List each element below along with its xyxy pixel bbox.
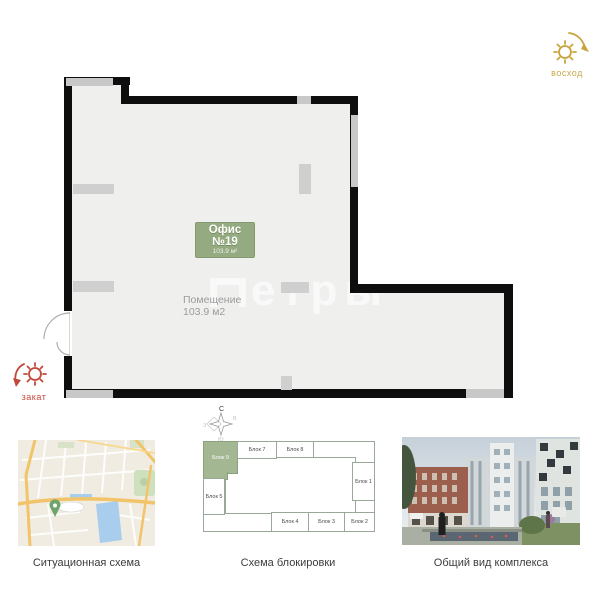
wall <box>350 284 513 293</box>
complex-view-thumbnail[interactable] <box>402 437 580 545</box>
floor-plan-page: етры Офис №19 103.9 м² <box>0 0 600 600</box>
map-image <box>18 440 155 546</box>
wall-stub <box>73 184 114 194</box>
block-4: Блок 4 <box>271 512 309 532</box>
wall <box>64 77 72 311</box>
room-fill <box>72 83 128 390</box>
wall <box>64 389 513 398</box>
room-area: 103.9 м2 <box>183 306 241 318</box>
complex-render-image <box>402 437 580 545</box>
room-label: Помещение 103.9 м2 <box>183 294 241 318</box>
block-5: Блок 5 <box>203 478 225 515</box>
wall <box>121 96 358 104</box>
render-caption: Общий вид комплекса <box>416 557 566 569</box>
office-badge: Офис №19 103.9 м² <box>195 222 255 258</box>
wall-stub <box>281 282 309 293</box>
block-9: Блок 9 <box>203 441 238 474</box>
courtyard <box>225 457 356 514</box>
sunrise-icon <box>541 28 593 68</box>
wall <box>504 284 513 398</box>
compass-icon: С В З Ю <box>202 403 240 441</box>
sunset-label: закат <box>6 392 62 402</box>
sunrise-label: восход <box>539 68 595 78</box>
door-icon <box>38 305 74 361</box>
office-area: 103.9 м² <box>196 248 254 255</box>
room-name: Помещение <box>183 294 241 306</box>
block-3: Блок 3 <box>308 512 345 532</box>
office-title: Офис №19 <box>196 224 254 248</box>
window-segment <box>66 390 113 398</box>
window-segment <box>466 389 504 398</box>
window-segment <box>66 78 113 86</box>
svg-text:В: В <box>233 416 237 422</box>
scheme-caption: Схема блокировки <box>213 557 363 569</box>
wall-stub <box>281 376 292 390</box>
window-segment <box>351 115 358 187</box>
block-2: Блок 2 <box>344 512 375 532</box>
block-7: Блок 7 <box>237 441 277 459</box>
window-segment <box>297 96 311 104</box>
svg-text:С: С <box>219 406 224 413</box>
block-1: Блок 1 <box>352 462 375 501</box>
blocking-scheme: Блок 9 Блок 7 Блок 8 Блок 1 Блок 5 Блок … <box>203 441 375 532</box>
block-8: Блок 8 <box>276 441 314 458</box>
map-caption: Ситуационная схема <box>10 557 163 569</box>
pillar <box>299 164 311 194</box>
svg-text:З: З <box>203 423 207 429</box>
wall-stub <box>73 281 114 292</box>
situational-map-thumbnail[interactable] <box>18 440 155 546</box>
